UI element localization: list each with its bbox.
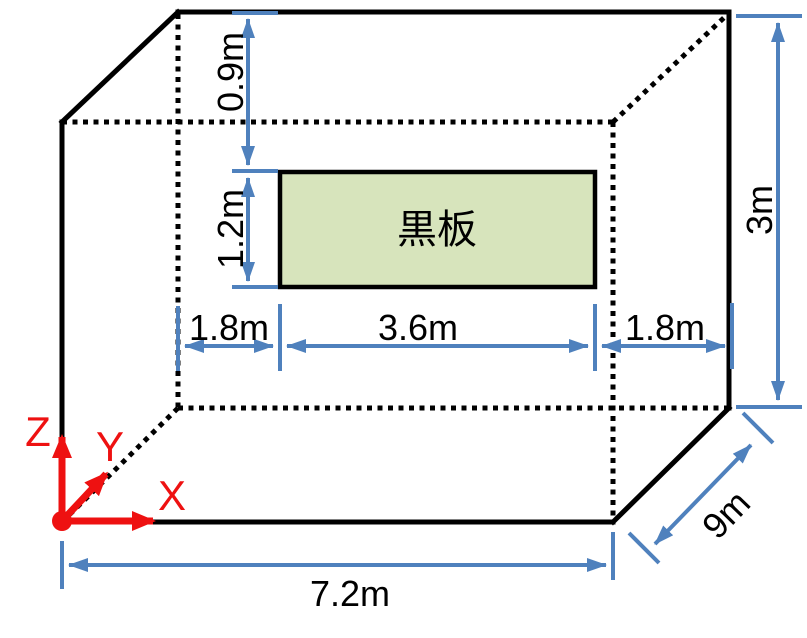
label-board-height: 1.2m bbox=[210, 189, 251, 269]
blackboard-label: 黒板 bbox=[397, 208, 477, 252]
label-right-gap: 1.8m bbox=[625, 307, 705, 348]
label-ceiling-gap: 0.9m bbox=[210, 32, 251, 112]
origin-point bbox=[52, 511, 72, 531]
tick-depth-far bbox=[743, 413, 773, 443]
tick-depth-near bbox=[629, 533, 659, 563]
z-axis-label: Z bbox=[25, 408, 51, 455]
label-floor-width: 7.2m bbox=[310, 573, 390, 614]
edge-top-right-depth bbox=[613, 13, 729, 122]
blackboard: 黒板 bbox=[280, 172, 595, 287]
edge-top-left-depth bbox=[62, 12, 178, 122]
x-axis-label: X bbox=[158, 472, 186, 519]
diagram-stage: 黒板 0.9m 1.2m 3m 1.8m 3.6m 1.8m 7.2m bbox=[0, 0, 807, 638]
y-axis-label: Y bbox=[96, 423, 124, 470]
label-board-width: 3.6m bbox=[378, 307, 458, 348]
room-3d-diagram: 黒板 0.9m 1.2m 3m 1.8m 3.6m 1.8m 7.2m bbox=[0, 0, 807, 638]
label-wall-height: 3m bbox=[739, 185, 780, 235]
dimension-labels: 0.9m 1.2m 3m 1.8m 3.6m 1.8m 7.2m 9m bbox=[189, 32, 780, 614]
label-left-gap: 1.8m bbox=[189, 307, 269, 348]
